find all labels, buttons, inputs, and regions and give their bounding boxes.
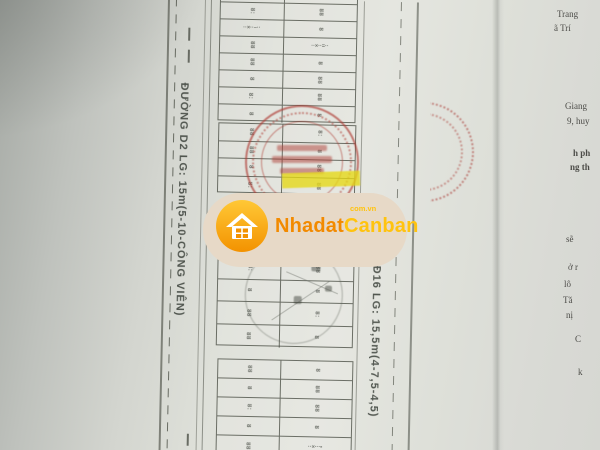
page2-fragment: sẽ xyxy=(566,234,574,244)
page2-fragment: h ph xyxy=(573,148,590,158)
watermark-domain: com.vn xyxy=(350,204,376,213)
page2-fragment: ở r xyxy=(568,262,578,272)
page2-fragment: Trang xyxy=(557,9,578,19)
stamp-text-line xyxy=(277,145,327,151)
page2-fragment: k xyxy=(578,367,583,377)
yellow-highlight-mark xyxy=(282,171,360,189)
watermark-brand-part2: Canban xyxy=(344,215,419,237)
watermark-brand: NhadatCanban xyxy=(275,215,419,238)
page2-fragment: ã Trí xyxy=(554,23,571,33)
watermark-pill: NhadatCanban com.vn xyxy=(203,193,407,267)
page2-fragment: lô xyxy=(564,279,571,289)
house-logo-icon xyxy=(216,200,268,252)
half-red-stamp xyxy=(430,100,476,204)
page2-fragment: Giang xyxy=(565,101,587,111)
page2-fragment: Tă xyxy=(563,295,573,305)
page2-fragment: nị xyxy=(566,310,573,320)
half-red-stamp-rings xyxy=(430,102,474,202)
house-icon xyxy=(222,206,262,246)
stamp-text-line xyxy=(272,156,332,163)
page2-fragment: C xyxy=(575,334,581,344)
photographed-land-plot-document: ĐƯỜNG D2 LG: 15m(5-10-CÔNG VIÊN) ĐƯỜNG Đ… xyxy=(0,0,600,450)
page2-fragment: 9, huy xyxy=(567,116,590,126)
page2-fragment: ng th xyxy=(570,162,590,172)
watermark-brand-part1: Nhadat xyxy=(275,215,344,237)
